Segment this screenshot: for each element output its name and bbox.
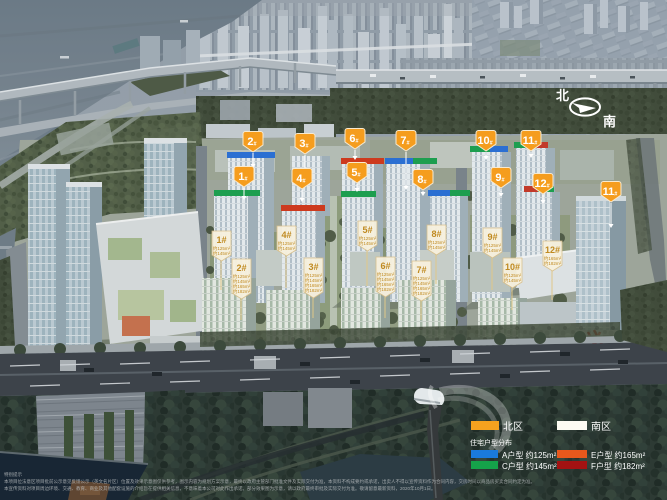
svg-text:约182m²: 约182m²: [413, 290, 431, 297]
svg-text:F户型 约182m²: F户型 约182m²: [591, 461, 645, 471]
svg-text:5#: 5#: [362, 225, 372, 235]
svg-text:12#: 12#: [545, 245, 560, 255]
svg-text:3#: 3#: [308, 262, 318, 272]
svg-text:北区: 北区: [503, 421, 523, 433]
svg-text:约182m²: 约182m²: [233, 288, 251, 295]
svg-text:本宣传资料对项目周边环境、交通、教育、商业及其他配套设施的介: 本宣传资料对项目周边环境、交通、教育、商业及其他配套设施的介绍旨在提供相关信息，…: [4, 485, 436, 492]
svg-text:特别提示: 特别提示: [4, 471, 22, 478]
svg-text:南区: 南区: [591, 420, 611, 433]
svg-text:C户型 约145m²: C户型 约145m²: [502, 461, 557, 471]
svg-text:10#: 10#: [505, 262, 520, 272]
svg-text:约182m²: 约182m²: [377, 286, 395, 293]
svg-text:约182m²: 约182m²: [305, 287, 323, 294]
svg-text:约145m²: 约145m²: [213, 250, 231, 257]
svg-text:约182m²: 约182m²: [544, 260, 562, 267]
svg-text:南: 南: [603, 114, 616, 129]
svg-text:7#: 7#: [416, 265, 426, 275]
svg-text:1#: 1#: [216, 235, 226, 245]
svg-text:4#: 4#: [281, 230, 291, 240]
svg-text:约145m²: 约145m²: [359, 240, 377, 247]
svg-text:约145m²: 约145m²: [428, 244, 446, 251]
svg-text:约145m²: 约145m²: [278, 245, 296, 252]
svg-text:约145m²: 约145m²: [504, 277, 522, 284]
svg-text:8#: 8#: [431, 229, 441, 239]
svg-text:9#: 9#: [487, 232, 497, 242]
svg-text:本项目位法意区项目批前公示意见反馈公示（英文名片区）位置及效: 本项目位法意区项目批前公示意见反馈公示（英文名片区）位置及效果示意图仅供参考，图…: [4, 478, 535, 485]
svg-text:A户型 约125m²: A户型 约125m²: [502, 450, 557, 460]
svg-text:约145m²: 约145m²: [484, 247, 502, 254]
svg-text:北: 北: [556, 88, 569, 103]
svg-text:住宅户型分布: 住宅户型分布: [470, 438, 512, 447]
svg-text:6#: 6#: [380, 261, 390, 271]
svg-text:E户型 约165m²: E户型 约165m²: [591, 450, 646, 460]
svg-text:2#: 2#: [236, 263, 246, 273]
